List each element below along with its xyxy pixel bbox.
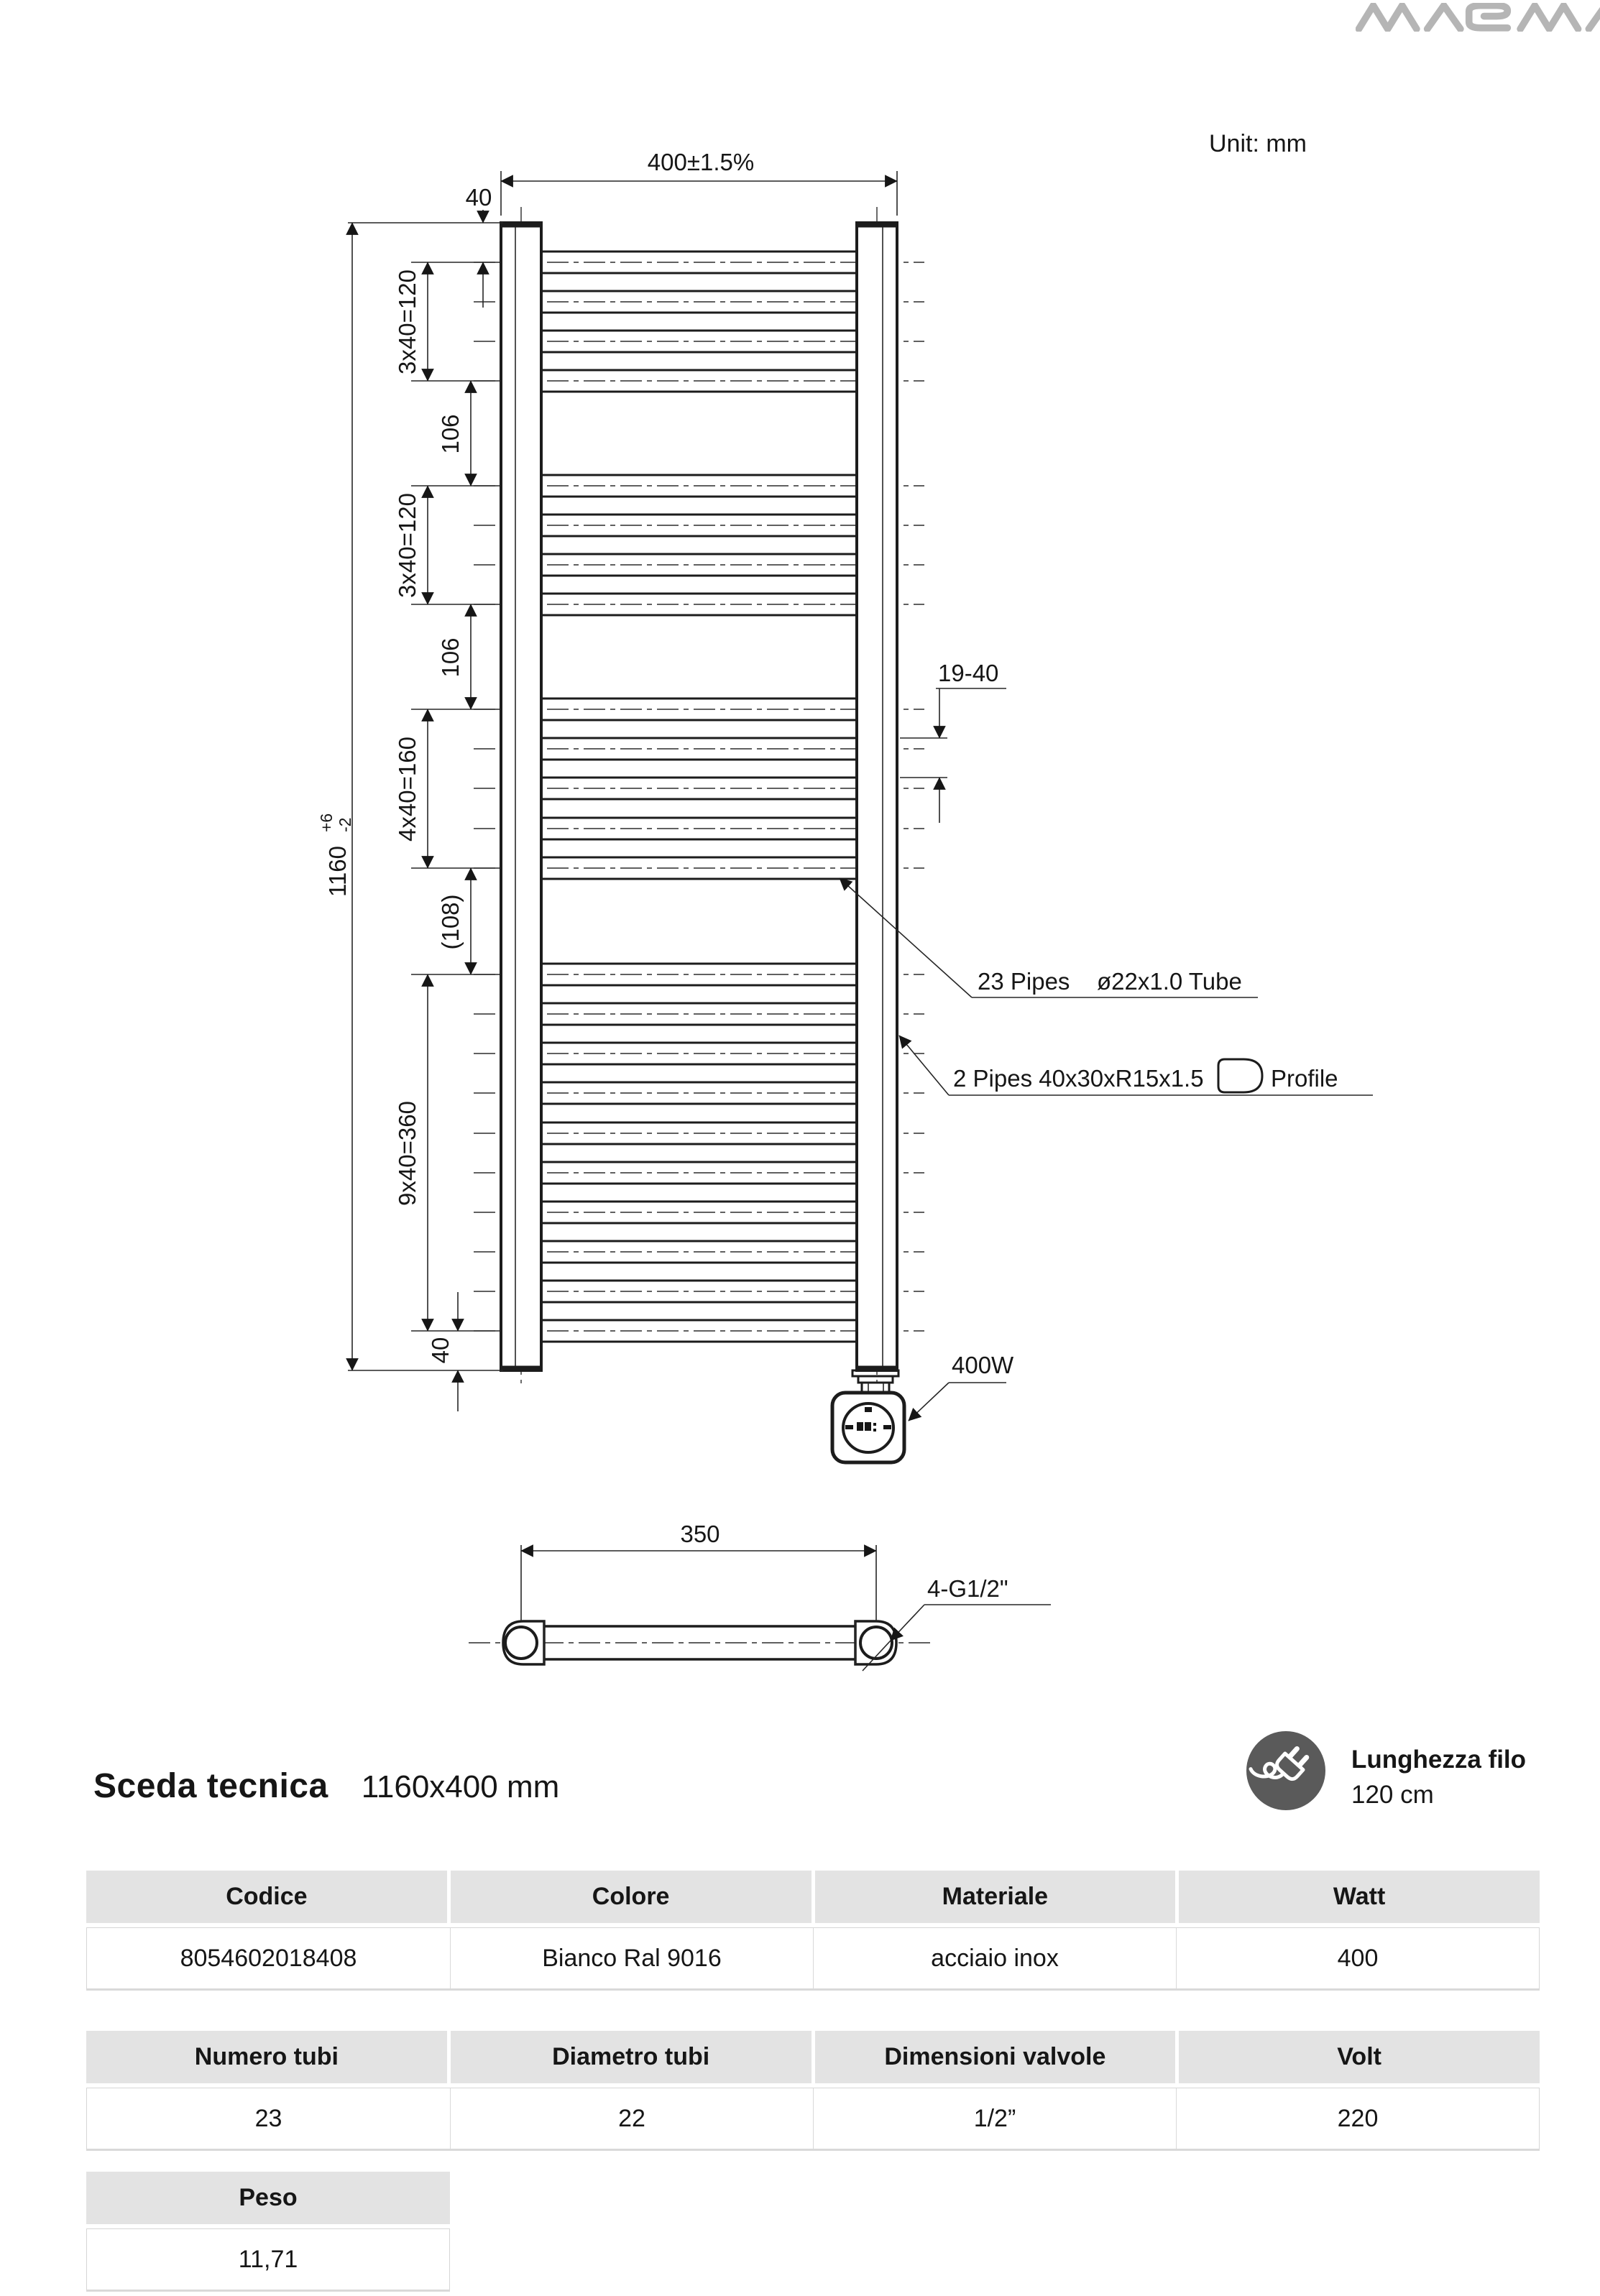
- side-profile-tubes: [500, 207, 898, 1383]
- dim-bracket-range: 19-40: [900, 660, 1006, 823]
- bottom-view: [469, 1621, 931, 1664]
- details-header-diametro-tubi: Diametro tubi: [451, 2031, 812, 2083]
- callout-valves-label: 4-G1/2": [927, 1575, 1008, 1602]
- callout-power-label: 400W: [952, 1352, 1014, 1378]
- dim-pipe-groups: 3x40=120 106 3x40=120 106 4x40=160 (108)…: [394, 262, 471, 1331]
- details-value-dimensioni-valvole: 1/2”: [813, 2088, 1176, 2149]
- title-heading: Sceda tecnica: [93, 1766, 328, 1806]
- cable-info: Lunghezza filo 120 cm: [1245, 1730, 1526, 1812]
- page-title: Sceda tecnica 1160x400 mm: [93, 1766, 559, 1806]
- specs-value-codice: 8054602018408: [87, 1928, 450, 1988]
- title-size: 1160x400 mm: [362, 1769, 560, 1805]
- details-value-diametro-tubi: 22: [450, 2088, 813, 2149]
- technical-drawing: 400±1.5% Unit: mm 1160 +6 -2 40 3x: [0, 0, 1600, 1718]
- dim-top-offset-label: 40: [466, 184, 492, 211]
- specs-header-materiale: Materiale: [815, 1871, 1176, 1923]
- valve-port-right: [860, 1627, 892, 1659]
- details-header-volt: Volt: [1179, 2031, 1540, 2083]
- table-row: 23 22 1/2” 220: [86, 2088, 1540, 2151]
- dim-group1-label: 3x40=120: [394, 269, 420, 374]
- dim-gap1-label: 106: [437, 414, 464, 453]
- electric-heater: [832, 1370, 904, 1462]
- callout-pipes: 23 Pipes ø22x1.0 Tube: [840, 878, 1258, 997]
- specs-header-colore: Colore: [451, 1871, 812, 1923]
- weight-header-peso: Peso: [86, 2172, 450, 2224]
- callout-profile-pipes: 2 Pipes 40x30xR15x1.5: [953, 1065, 1204, 1092]
- specs-value-watt: 400: [1176, 1928, 1539, 1988]
- dim-overall-label: 1160: [324, 846, 351, 897]
- callout-pipes-count: 23 Pipes: [978, 968, 1070, 995]
- dim-overall-tol-minus: -2: [336, 818, 354, 832]
- dim-top-offset: 40: [466, 184, 492, 308]
- dim-group4-label: 9x40=360: [394, 1101, 420, 1206]
- specs-table: Codice Colore Materiale Watt 80546020184…: [86, 1871, 1540, 1991]
- weight-table: Peso 11,71: [86, 2172, 450, 2292]
- callout-power: 400W: [909, 1352, 1014, 1421]
- dim-width-label: 400±1.5%: [648, 149, 754, 175]
- valve-port-left: [505, 1627, 537, 1659]
- unit-note: Unit: mm: [1209, 130, 1307, 157]
- cable-label: Lunghezza filo: [1351, 1746, 1526, 1774]
- cable-value: 120 cm: [1351, 1781, 1526, 1809]
- dim-bracket-label: 19-40: [938, 660, 998, 686]
- datasheet-page: 400±1.5% Unit: mm 1160 +6 -2 40 3x: [0, 0, 1600, 2296]
- dim-group3-label: 4x40=160: [394, 737, 420, 842]
- details-header-dimensioni-valvole: Dimensioni valvole: [815, 2031, 1176, 2083]
- details-value-volt: 220: [1176, 2088, 1539, 2149]
- table-row: 11,71: [86, 2228, 450, 2292]
- specs-header-codice: Codice: [86, 1871, 447, 1923]
- weight-value-peso: 11,71: [87, 2229, 449, 2290]
- dim-width: 400±1.5%: [501, 149, 897, 216]
- profile-section-icon: [1218, 1059, 1262, 1092]
- details-header-numero-tubi: Numero tubi: [86, 2031, 447, 2083]
- callout-profile: 2 Pipes 40x30xR15x1.5 Profile: [899, 1036, 1373, 1095]
- specs-value-colore: Bianco Ral 9016: [450, 1928, 813, 1988]
- dim-gap2-label: 106: [437, 637, 464, 677]
- table-row: 8054602018408 Bianco Ral 9016 acciaio in…: [86, 1927, 1540, 1991]
- dim-bottom-offset: 40: [427, 1292, 458, 1411]
- details-value-numero-tubi: 23: [87, 2088, 450, 2149]
- dim-group2-label: 3x40=120: [394, 493, 420, 598]
- dim-overall-tol-plus: +6: [317, 813, 336, 832]
- details-table: Numero tubi Diametro tubi Dimensioni val…: [86, 2031, 1540, 2151]
- dim-gap3-label: (108): [437, 894, 464, 949]
- dim-port-span-label: 350: [680, 1521, 719, 1547]
- callout-profile-word: Profile: [1271, 1065, 1338, 1092]
- specs-header-watt: Watt: [1179, 1871, 1540, 1923]
- power-plug-icon: [1245, 1730, 1327, 1812]
- dim-bottom-offset-label: 40: [427, 1337, 454, 1364]
- specs-value-materiale: acciaio inox: [813, 1928, 1176, 1988]
- dim-port-span: 350: [521, 1521, 876, 1621]
- callout-pipes-tube: ø22x1.0 Tube: [1097, 968, 1242, 995]
